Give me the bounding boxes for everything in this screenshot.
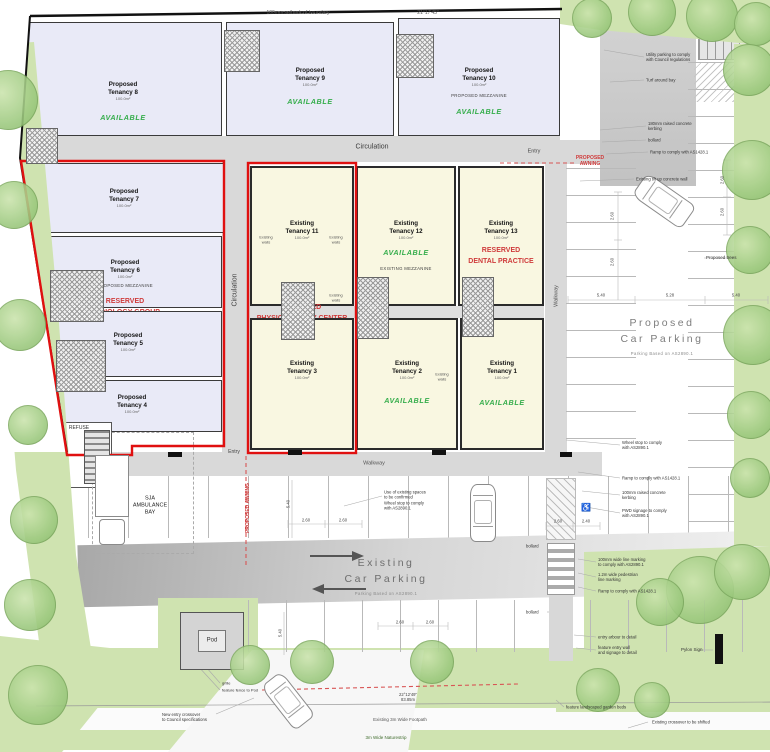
dim-14: 5.40 [285,500,290,508]
room-t7-name: Proposed Tenancy 7 [25,188,223,204]
wheelchair-symbol: ♿ [581,503,591,513]
proposed-car-parking-subtitle: Parking Based on AS2890.1 [621,351,704,356]
existing-car-parking-label: Existing Car Parking Parking Based on AS… [345,556,428,596]
proposed-trees-note: Proposed trees [706,255,737,261]
room-t1: Existing Tenancy 1100.0m²AVAILABLE [460,318,544,450]
ramp-note-3: Ramp to comply with AS1428.1 [598,588,656,593]
dim-3: 2.60 [554,518,562,523]
dim-10: 2.60 [609,212,614,220]
car-windshield-line [473,526,493,527]
setback-note: 100mm setback of boundary [266,10,329,16]
dim-4: 2.40 [582,518,590,523]
bollard-note-3: bollard [526,609,539,614]
dim-8: 5.28 [666,292,674,297]
room-t10-status: AVAILABLE [399,107,559,116]
entry-bottom: Entry [228,449,240,455]
ambulance-bay-label: SJA AMBULANCE BAY [133,496,167,517]
bearing-top: 21°17'45" [417,10,438,16]
pylon-sign [715,634,723,664]
existing-walls-2: Existing walls [329,235,342,244]
room-t12-area: 100.0m² [358,235,454,240]
room-t12-status: AVAILABLE [358,248,454,257]
tree [714,544,770,600]
room-t9-status: AVAILABLE [227,97,393,106]
ramp-note-2: Ramp to comply with AS1428.1 [622,475,680,480]
room-t1-name: Existing Tenancy 1 [462,360,542,376]
utility-parking-note: Utility parking to comply with Council r… [646,52,690,63]
naturestrip-label: 3m Wide Naturestrip [365,735,406,741]
room-t1-area: 100.0m² [462,375,542,380]
dim-9: 5.40 [732,292,740,297]
service-core [357,277,389,339]
dim-11: 2.60 [609,258,614,266]
existing-walls-4: Existing walls [435,372,448,381]
refuse-label: REFUSE [69,425,89,431]
existing-car-parking-title: Existing Car Parking [345,556,428,588]
room-t4-area: 100.0m² [43,409,221,414]
circulation-left: Circulation [232,273,241,306]
room-t13-reserved: RESERVED DENTAL PRACTICE [460,246,542,268]
room-t8-area: 100.0m² [25,96,221,101]
pwd-signage-note: PWD signage to comply with AS2890.1 [622,508,667,519]
tiltup-wall-note: Existing tilt up concrete wall [636,176,687,181]
dim-2: 2.60 [339,517,347,522]
tree [727,391,770,439]
proposed-car-parking-title: Proposed Car Parking [621,316,704,348]
pylon-sign-label: Pylon Sign [681,647,703,653]
dim-5: 2.60 [396,619,404,624]
ramp-note-1: Ramp to comply with AS1428.1 [650,149,708,154]
service-core [281,282,315,340]
proposed-awning-right: PROPOSED AWNING [576,155,604,168]
proposed-car-parking-label: Proposed Car Parking Parking Based on AS… [621,316,704,356]
kerbing-note-2: 100mm raised concrete kerbing [622,490,666,501]
car [470,484,496,542]
bearing-bottom: 22°12'49" 83.85m [399,692,417,703]
tree [726,226,770,274]
pod-fence-label: feature fence to Pod [222,688,258,693]
crossing-path [549,595,573,661]
room-t1-status: AVAILABLE [462,398,542,407]
existing-walls-3: Existing walls [329,293,342,302]
room-t12-name: Existing Tenancy 12 [358,220,454,236]
grille-label: grille [222,681,230,686]
tree [8,405,48,445]
tree [634,682,670,718]
bollard-note-1: bollard [648,137,661,142]
existing-car-parking-subtitle: Parking Based on AS2890.1 [345,591,428,596]
bollard-note-2: bollard [526,543,539,548]
existing-walls-1: Existing walls [259,235,272,244]
room-t13-name: Existing Tenancy 13 [460,220,542,236]
tree [290,640,334,684]
entry-wall-note: feature entry wall and signage to detail [598,645,637,656]
pedestrian-crossing [547,543,575,595]
footpath-label: Existing 3m Wide Footpath [373,717,427,723]
service-core [224,30,260,72]
walkway-bottom: Walkway [363,461,385,468]
entry-top: Entry [528,149,541,156]
room-t4-name: Proposed Tenancy 4 [43,394,221,410]
service-core [50,270,104,322]
room-t7: Proposed Tenancy 7100.0m² [24,163,224,233]
ambulance-vehicle [95,455,129,517]
car-windshield-line [473,495,493,496]
walkway-band-top-right [600,26,696,186]
dim-15: 5.40 [277,629,282,637]
garden-beds-note: feature landscaped garden beds [566,704,626,709]
car-roof [474,500,491,525]
circulation-corridor-top [32,136,560,162]
service-core [462,277,494,337]
proposed-parking-bays-left [566,168,636,440]
disabled-parking-bay [546,478,576,540]
dim-6: 2.60 [426,619,434,624]
room-t2-status: AVAILABLE [358,396,456,405]
room-t10-note: PROPOSED MEZZANINE [399,93,559,98]
tree [8,665,68,725]
room-t9-area: 100.0m² [227,82,393,87]
tree [730,458,770,498]
site-plan: Existing Car Parking Parking Based on AS… [0,0,770,752]
dim-13: 2.60 [719,208,724,216]
room-t8-name: Proposed Tenancy 8 [25,81,221,97]
ambulance-cab [99,519,125,545]
service-core [396,34,434,78]
tree [723,44,770,96]
room-t3-name: Existing Tenancy 3 [252,360,352,376]
dim-7: 5.40 [597,292,605,297]
turf-note: Turf around bay [646,77,675,82]
circulation-top: Circulation [355,144,388,153]
tree [230,645,270,685]
dim-1: 2.60 [302,517,310,522]
service-core [26,128,58,164]
pod-label: Pod [207,637,218,645]
room-t10-area: 100.0m² [399,82,559,87]
room-t11-name: Existing Tenancy 11 [252,220,352,236]
line-marking-note: 100mm wide line marking to comply with A… [598,557,645,568]
tree [636,578,684,626]
service-core [56,340,106,392]
tree [4,579,56,631]
proposed-awning-mid: PROPOSED AWNING [245,483,251,533]
tree [410,640,454,684]
room-t8: Proposed Tenancy 8100.0m²AVAILABLE [24,22,222,136]
entry-arbour-note: entry arbour to detail [598,634,636,639]
pedestrian-marking-note: 1.2m wide pedestrian line marking [598,572,638,583]
room-t12-note: EXISTING MEZZANINE [358,266,454,271]
existing-spaces-note: Use of existing spaces to be confirmed W… [384,490,426,511]
room-t8-status: AVAILABLE [25,113,221,122]
dim-12: 2.60 [719,176,724,184]
new-crossover-note: New entry crossover to Council specifica… [162,712,207,723]
room-t13-area: 100.0m² [460,235,542,240]
crossover-shift-note: Existing crossover to be shifted [652,719,710,724]
tree [10,496,58,544]
wheelstop-note: Wheel stop to comply with AS2890.1 [622,440,662,451]
kerbing-note-1: 180mm raised concrete kerbing [648,121,692,132]
room-t3-area: 100.0m² [252,375,352,380]
room-t7-area: 100.0m² [25,203,223,208]
tree [734,2,770,46]
walkway-right: Walkway [554,285,561,307]
